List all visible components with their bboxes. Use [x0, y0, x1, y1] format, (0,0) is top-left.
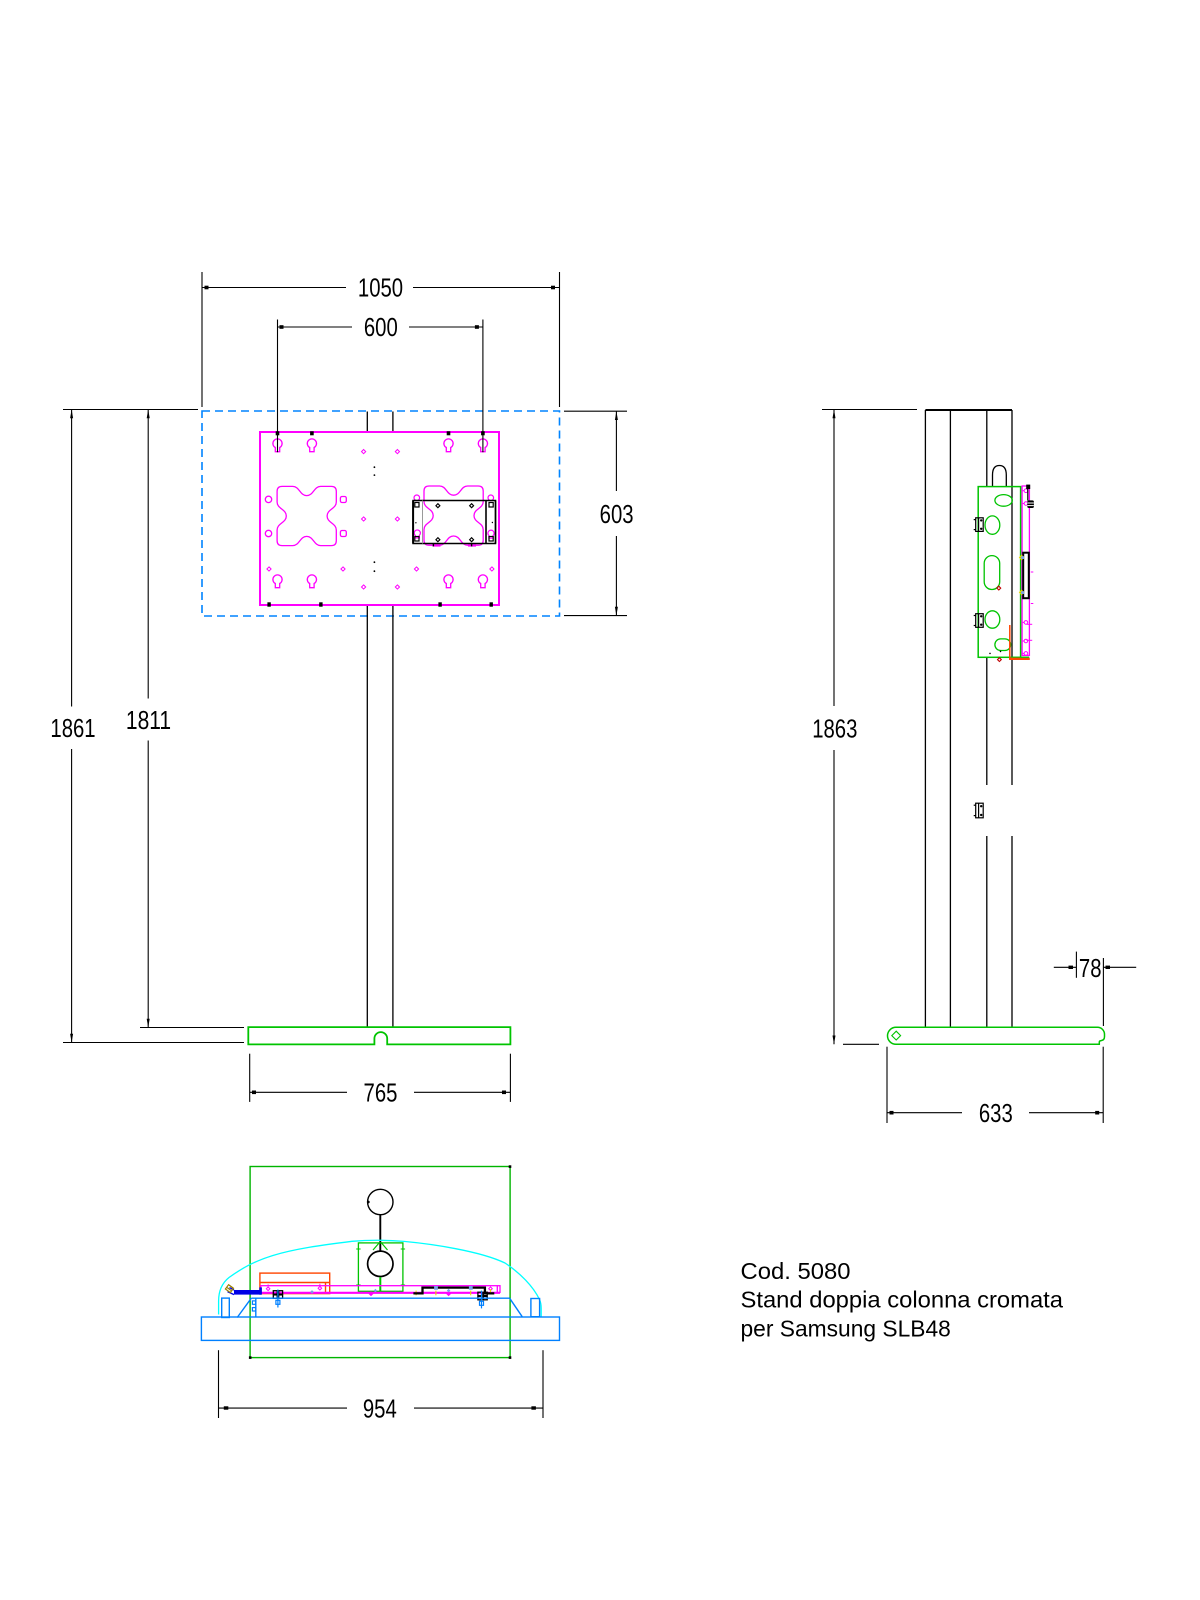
svg-text:Cod. 5080: Cod. 5080: [741, 1258, 851, 1284]
svg-text:per Samsung SLB48: per Samsung SLB48: [741, 1315, 951, 1341]
svg-text:1811: 1811: [126, 705, 171, 735]
svg-text:1861: 1861: [50, 713, 95, 743]
svg-text:Stand doppia colonna cromata: Stand doppia colonna cromata: [741, 1287, 1064, 1313]
svg-text:954: 954: [363, 1393, 397, 1423]
svg-text:78: 78: [1079, 953, 1102, 983]
svg-text:633: 633: [979, 1098, 1013, 1128]
svg-text:1050: 1050: [358, 273, 403, 303]
svg-text:765: 765: [364, 1078, 398, 1108]
svg-text:600: 600: [364, 312, 398, 342]
svg-text:603: 603: [600, 499, 634, 529]
svg-text:1863: 1863: [812, 713, 857, 743]
